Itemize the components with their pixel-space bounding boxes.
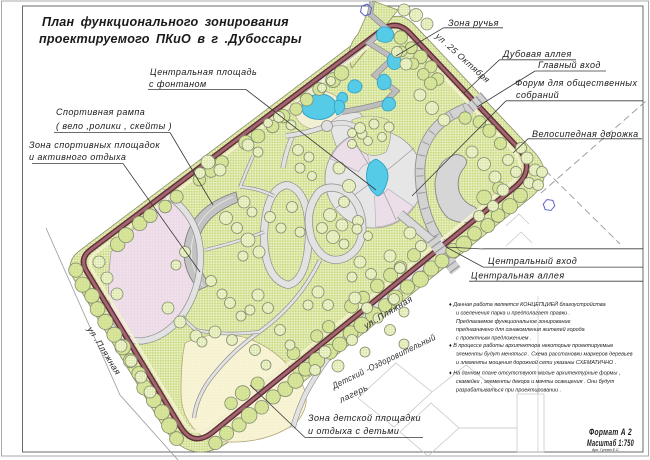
svg-text:План функционального зонирован: План функционального зонирования <box>42 15 289 29</box>
svg-text:Арх. Гуппал Е.С.: Арх. Гуппал Е.С. <box>591 448 620 452</box>
svg-text:Зона ручья: Зона ручья <box>448 18 499 28</box>
svg-text:Центральный вход: Центральный вход <box>488 256 577 266</box>
svg-text:Масштаб 1:750: Масштаб 1:750 <box>587 438 634 448</box>
svg-text:разрабатываться при проектиров: разрабатываться при проектировании . <box>455 387 561 393</box>
svg-text:♦ Данная работа является КОНЦЕ: ♦ Данная работа является КОНЦЕПЦИЕЙ благ… <box>449 300 606 308</box>
svg-text:и активного отдыха: и активного отдыха <box>29 152 126 162</box>
svg-text:Формат А 2: Формат А 2 <box>589 427 632 437</box>
svg-text:Предлагаемое функциональное зо: Предлагаемое функциональное зонирование <box>456 319 571 325</box>
svg-text:♦ На данном плане отсутствуют: ♦ На данном плане отсутствуют малые архи… <box>449 371 620 377</box>
svg-text:♦ В процессе работы архитектор: ♦ В процессе работы архитектора некоторы… <box>449 343 613 349</box>
svg-text:с проектным предложением .: с проектным предложением . <box>456 336 531 342</box>
svg-text:Главный вход: Главный вход <box>538 60 601 70</box>
svg-text:и отдыха с детьми: и отдыха с детьми <box>308 426 399 436</box>
svg-text:предназначено для ознакомления: предназначено для ознакомления жителей г… <box>456 326 585 333</box>
svg-text:( вело ,ролики , скейты ): ( вело ,ролики , скейты ) <box>56 121 172 131</box>
svg-text:с фонтаном: с фонтаном <box>149 79 207 89</box>
svg-text:Зона детской площадки: Зона детской площадки <box>308 413 421 423</box>
svg-text:Дубовая аллея: Дубовая аллея <box>502 49 572 59</box>
svg-text:Форум для общественных: Форум для общественных <box>515 78 638 88</box>
svg-text:собраний: собраний <box>516 90 559 100</box>
svg-text:проектируемого ПКиО в г .Дубос: проектируемого ПКиО в г .Дубоссары <box>39 32 302 46</box>
svg-text:Велосипедная дорожка: Велосипедная дорожка <box>532 129 639 139</box>
svg-text:Центральная аллея: Центральная аллея <box>471 271 565 281</box>
svg-text:скамейки , элементы декора и м: скамейки , элементы декора и мачты освещ… <box>456 378 615 385</box>
svg-text:Центральная площадь: Центральная площадь <box>150 67 257 77</box>
svg-text:Зона спортивных площадок: Зона спортивных площадок <box>29 140 160 150</box>
svg-text:элементы будут меняться . Схем: элементы будут меняться . Схема расстано… <box>456 351 633 357</box>
svg-text:и элементы мощения дорожной се: и элементы мощения дорожной сети указаны… <box>456 359 616 366</box>
svg-text:и озеленения парка и предполаг: и озеленения парка и предполагает правки… <box>456 310 570 316</box>
svg-text:Спортивная рампа: Спортивная рампа <box>56 107 145 117</box>
